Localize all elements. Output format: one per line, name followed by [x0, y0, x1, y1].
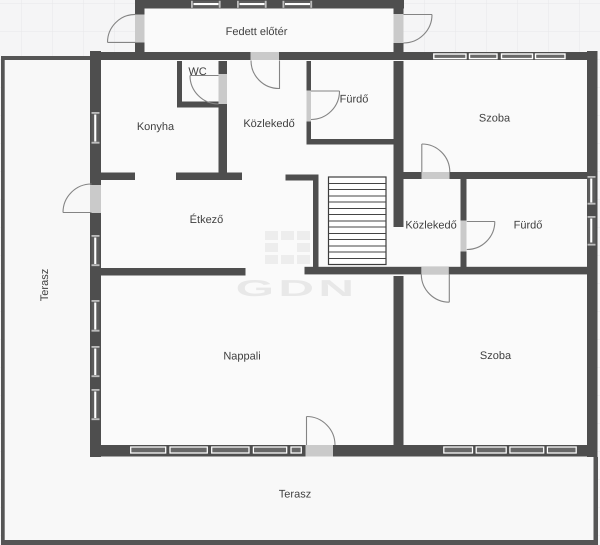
svg-text:Fedett előtér: Fedett előtér: [226, 26, 288, 38]
svg-text:Konyha: Konyha: [137, 121, 175, 133]
svg-text:Szoba: Szoba: [480, 350, 512, 362]
svg-text:Közlekedő: Közlekedő: [405, 220, 456, 232]
svg-text:Szoba: Szoba: [479, 113, 511, 125]
svg-text:WC: WC: [188, 66, 206, 78]
svg-text:Étkező: Étkező: [190, 213, 224, 226]
svg-text:Fürdő: Fürdő: [514, 220, 543, 232]
svg-text:GDN: GDN: [236, 275, 359, 301]
svg-text:Fürdő: Fürdő: [340, 94, 369, 106]
svg-text:Terasz: Terasz: [39, 269, 51, 301]
svg-text:Terasz: Terasz: [279, 489, 311, 501]
svg-text:Nappali: Nappali: [223, 351, 260, 363]
svg-text:Közlekedő: Közlekedő: [243, 118, 294, 130]
